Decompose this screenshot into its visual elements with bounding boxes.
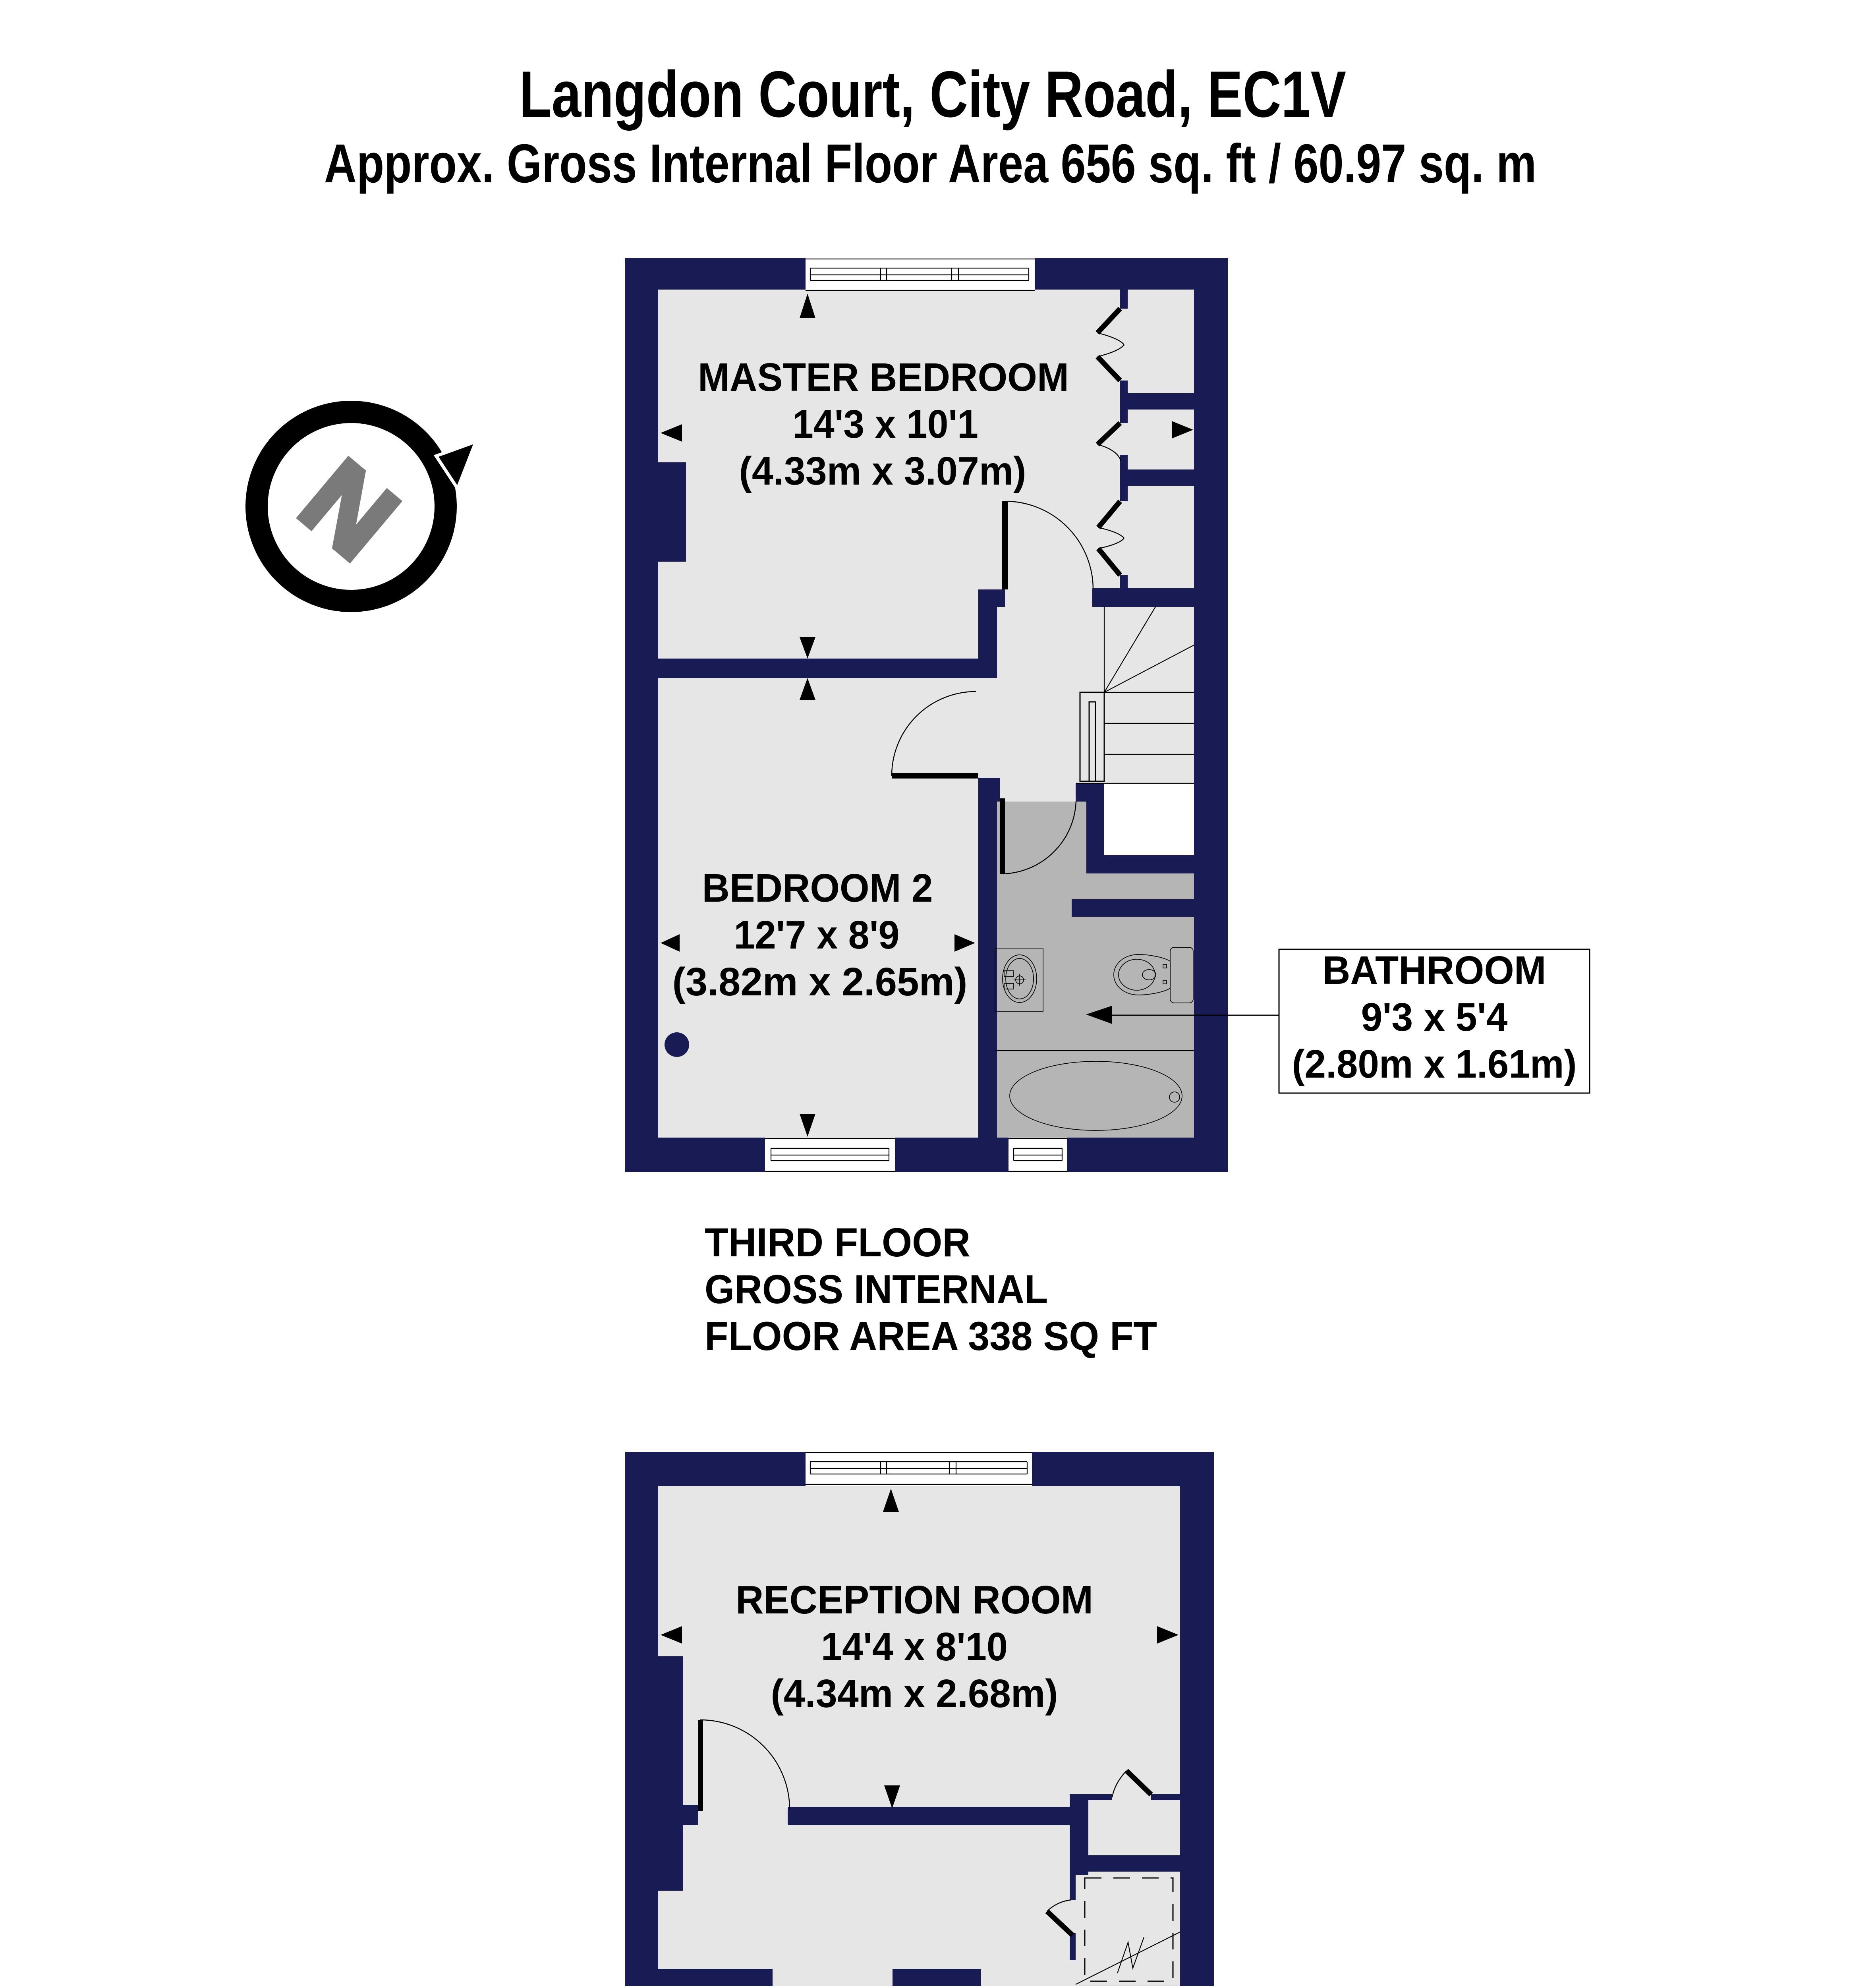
svg-text:12'7 x 8'9: 12'7 x 8'9 [734, 913, 900, 957]
svg-text:FLOOR AREA 338 SQ FT: FLOOR AREA 338 SQ FT [705, 1314, 1157, 1359]
svg-text:MASTER BEDROOM: MASTER BEDROOM [698, 355, 1069, 400]
svg-text:RECEPTION ROOM: RECEPTION ROOM [736, 1578, 1093, 1622]
svg-text:GROSS INTERNAL: GROSS INTERNAL [705, 1267, 1048, 1312]
svg-text:(3.82m x 2.65m): (3.82m x 2.65m) [672, 960, 968, 1004]
svg-text:9'3 x 5'4: 9'3 x 5'4 [1361, 995, 1508, 1039]
svg-text:(4.34m x 2.68m): (4.34m x 2.68m) [771, 1671, 1058, 1716]
svg-text:14'4 x 8'10: 14'4 x 8'10 [821, 1625, 1008, 1669]
svg-text:BATHROOM: BATHROOM [1323, 948, 1546, 993]
svg-text:14'3 x 10'1: 14'3 x 10'1 [792, 402, 978, 446]
svg-text:BEDROOM 2: BEDROOM 2 [702, 866, 933, 910]
svg-text:(4.33m x 3.07m): (4.33m x 3.07m) [739, 449, 1026, 493]
svg-text:(2.80m x 1.61m): (2.80m x 1.61m) [1292, 1042, 1577, 1086]
svg-text:Approx. Gross Internal Floor A: Approx. Gross Internal Floor Area 656 sq… [324, 133, 1536, 194]
svg-text:THIRD FLOOR: THIRD FLOOR [705, 1220, 970, 1265]
svg-text:Langdon Court, City Road, EC1V: Langdon Court, City Road, EC1V [519, 58, 1346, 131]
